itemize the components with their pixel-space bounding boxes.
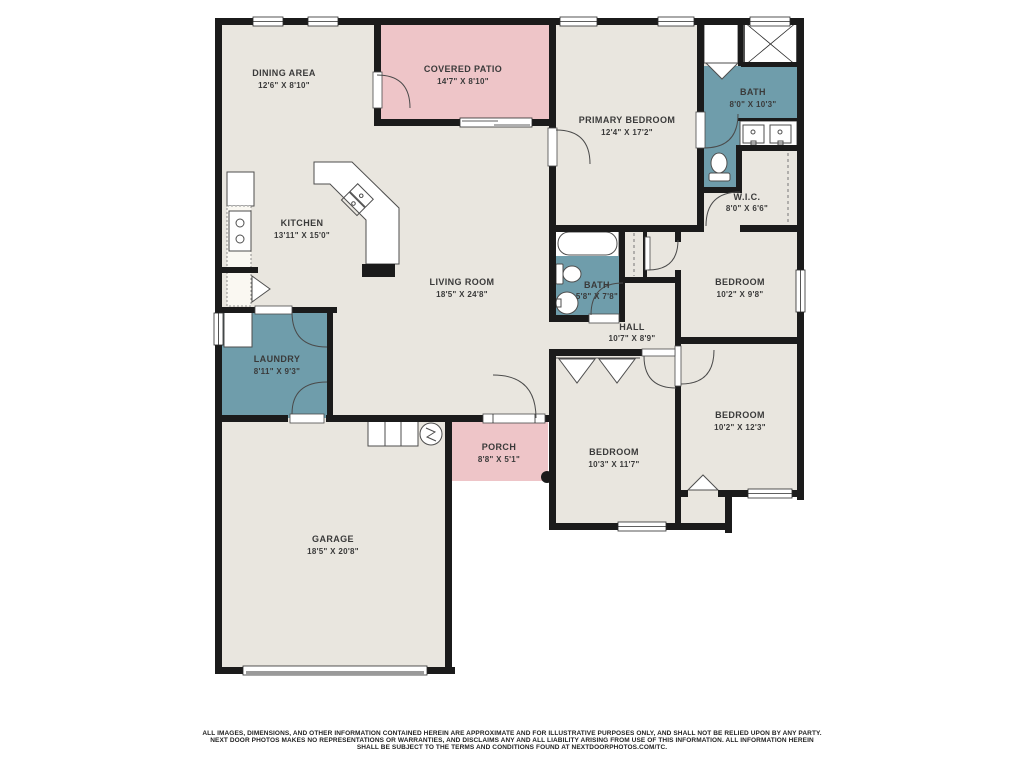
room-dims-garage: 18'5" X 20'8"	[307, 547, 359, 556]
room-label-bedroom-ne: BEDROOM	[715, 277, 765, 287]
room-dims-primary-bedroom: 12'4" X 17'2"	[601, 128, 653, 137]
room-dims-primary-bath: 8'0" X 10'3"	[729, 100, 776, 109]
window	[618, 522, 666, 531]
room-label-hall-bath: BATH	[584, 280, 610, 290]
room-label-dining: DINING AREA	[252, 68, 316, 78]
room-label-hall: HALL	[619, 322, 645, 332]
room-dims-hall-bath: 5'8" X 7'8"	[576, 292, 618, 301]
floor-plan-drawing: DINING AREA 12'6" X 8'10" COVERED PATIO …	[0, 0, 1024, 768]
room-label-primary-bedroom: PRIMARY BEDROOM	[579, 115, 676, 125]
window	[253, 17, 283, 26]
window	[658, 17, 694, 26]
garage-door	[243, 666, 427, 675]
sliding-patio-door	[460, 118, 532, 127]
window	[748, 489, 792, 498]
room-dims-bedroom-s: 10'3" X 11'7"	[588, 460, 639, 469]
bathtub	[558, 232, 617, 255]
room-label-kitchen: KITCHEN	[281, 218, 324, 228]
toilet-tank	[556, 264, 563, 284]
room-dims-dining: 12'6" X 8'10"	[258, 81, 310, 90]
window	[750, 17, 790, 26]
room-dims-wic: 8'0" X 6'6"	[726, 204, 768, 213]
window	[308, 17, 338, 26]
room-label-primary-bath: BATH	[740, 87, 766, 97]
room-label-living: LIVING ROOM	[430, 277, 495, 287]
room-dims-bedroom-ne: 10'2" X 9'8"	[716, 290, 763, 299]
room-dims-kitchen: 13'11" X 15'0"	[274, 231, 330, 240]
window	[214, 313, 223, 345]
window	[560, 17, 597, 26]
garage-floor	[218, 418, 448, 670]
refrigerator	[227, 172, 254, 206]
toilet	[563, 266, 581, 282]
disclaimer-line: SHALL BE SUBJECT TO THE TERMS AND CONDIT…	[0, 745, 1024, 752]
linen-closet	[704, 24, 738, 63]
room-dims-laundry: 8'11" X 9'3"	[254, 367, 301, 376]
toilet-tank	[709, 173, 730, 181]
disclaimer: ALL IMAGES, DIMENSIONS, AND OTHER INFORM…	[0, 731, 1024, 752]
toilet	[711, 153, 727, 173]
furnace-unit	[368, 420, 418, 446]
room-label-garage: GARAGE	[312, 534, 354, 544]
room-dims-living: 18'5" X 24'8"	[436, 290, 488, 299]
room-label-wic: W.I.C.	[734, 192, 761, 202]
room-dims-bedroom-se: 10'2" X 12'3"	[714, 423, 766, 432]
room-label-bedroom-s: BEDROOM	[589, 447, 639, 457]
stove	[229, 211, 251, 251]
washer	[224, 311, 252, 347]
room-dims-hall: 10'7" X 8'9"	[608, 334, 655, 343]
window	[796, 270, 805, 312]
floor-plan-page: DINING AREA 12'6" X 8'10" COVERED PATIO …	[0, 0, 1024, 768]
room-label-porch: PORCH	[482, 442, 517, 452]
room-label-bedroom-se: BEDROOM	[715, 410, 765, 420]
pedestal-sink	[556, 292, 578, 314]
room-dims-patio: 14'7" X 8'10"	[437, 77, 489, 86]
room-label-laundry: LAUNDRY	[254, 354, 300, 364]
room-label-patio: COVERED PATIO	[424, 64, 502, 74]
room-dims-porch: 8'8" X 5'1"	[478, 455, 520, 464]
